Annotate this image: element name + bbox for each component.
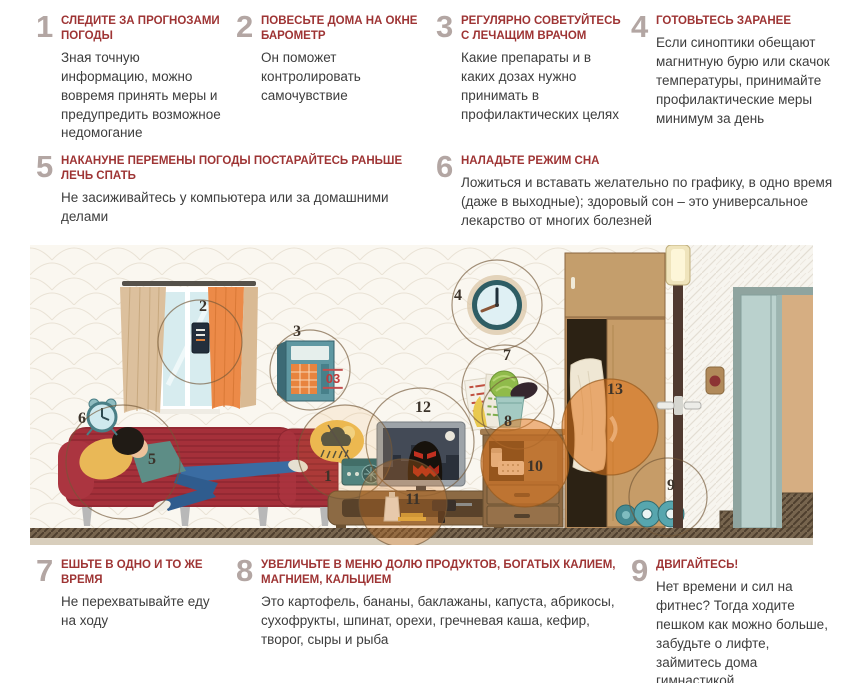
emergency-number-label: 03 (323, 369, 343, 389)
tip-1-number: 1 (36, 12, 61, 143)
tip-4-number: 4 (631, 12, 656, 128)
marker-12-tv: 12 (415, 399, 431, 417)
tip-6: 6 НАЛАДЬТЕ РЕЖИМ СНА Ложиться и вставать… (436, 152, 838, 231)
room-illustration-art (30, 245, 813, 545)
tip-8-title: УВЕЛИЧЬТЕ В МЕНЮ ДОЛЮ ПРОДУКТОВ, БОГАТЫХ… (261, 558, 626, 588)
tip-1-body: Зная точную информацию, можно вовремя пр… (61, 49, 224, 143)
room-illustration: 1 2 3 4 5 6 7 8 9 10 11 12 13 03 (30, 245, 813, 545)
tip-6-number: 6 (436, 152, 461, 231)
marker-11-bottle: 11 (405, 491, 420, 509)
tip-7-title: ЕШЬТЕ В ОДНО И ТО ЖЕ ВРЕМЯ (61, 558, 228, 588)
tip-7-number: 7 (36, 556, 61, 631)
tip-4-title: ГОТОВЬТЕСЬ ЗАРАНЕЕ (656, 14, 835, 29)
tip-9-body: Нет времени и сил на фитнес? Тогда ходит… (656, 578, 837, 683)
tip-2: 2 ПОВЕСЬТЕ ДОМА НА ОКНЕ БАРОМЕТР Он помо… (236, 12, 424, 106)
tip-9: 9 ДВИГАЙТЕСЬ! Нет времени и сил на фитне… (631, 556, 837, 683)
tip-7-body: Не перехватывайте еду на ходу (61, 593, 228, 631)
tip-6-body: Ложиться и вставать желательно по график… (461, 174, 838, 231)
tip-2-title: ПОВЕСЬТЕ ДОМА НА ОКНЕ БАРОМЕТР (261, 14, 424, 44)
infographic-page: 1 СЛЕДИТЕ ЗА ПРОГНОЗАМИ ПОГОДЫ Зная точн… (0, 0, 850, 683)
marker-2-barometer: 2 (199, 298, 207, 316)
tip-6-title: НАЛАДЬТЕ РЕЖИМ СНА (461, 154, 838, 169)
marker-9-dumbbells: 9 (667, 477, 675, 495)
tip-1-title: СЛЕДИТЕ ЗА ПРОГНОЗАМИ ПОГОДЫ (61, 14, 224, 44)
tip-5-number: 5 (36, 152, 61, 227)
tip-5-body: Не засиживайтесь у компьютера или за дом… (61, 189, 434, 227)
marker-6-alarm: 6 (78, 410, 86, 428)
tip-3: 3 РЕГУЛЯРНО СОВЕТУЙТЕСЬ С ЛЕЧАЩИМ ВРАЧОМ… (436, 12, 624, 124)
marker-13-wardrobe: 13 (607, 381, 623, 399)
tip-2-body: Он поможет контролировать самочувствие (261, 49, 424, 106)
marker-5-person: 5 (148, 451, 156, 469)
tip-8: 8 УВЕЛИЧЬТЕ В МЕНЮ ДОЛЮ ПРОДУКТОВ, БОГАТ… (236, 556, 626, 650)
tip-3-number: 3 (436, 12, 461, 124)
tip-3-body: Какие препараты и в каких дозах нужно пр… (461, 49, 624, 125)
tip-7: 7 ЕШЬТЕ В ОДНО И ТО ЖЕ ВРЕМЯ Не перехват… (36, 556, 228, 631)
tip-8-body: Это картофель, бананы, баклажаны, капуст… (261, 593, 626, 650)
tip-5: 5 НАКАНУНЕ ПЕРЕМЕНЫ ПОГОДЫ ПОСТАРАЙТЕСЬ … (36, 152, 434, 227)
marker-4-clock: 4 (454, 287, 462, 305)
marker-8-food: 8 (504, 413, 512, 431)
tip-8-number: 8 (236, 556, 261, 650)
marker-1-radio: 1 (324, 468, 332, 486)
marker-3-phone: 3 (293, 323, 301, 341)
tip-9-number: 9 (631, 556, 656, 683)
tip-5-title: НАКАНУНЕ ПЕРЕМЕНЫ ПОГОДЫ ПОСТАРАЙТЕСЬ РА… (61, 154, 434, 184)
tip-4-body: Если синоптики обещают магнитную бурю ил… (656, 34, 835, 128)
tip-3-title: РЕГУЛЯРНО СОВЕТУЙТЕСЬ С ЛЕЧАЩИМ ВРАЧОМ (461, 14, 624, 44)
marker-7-papers: 7 (503, 347, 511, 365)
tip-4: 4 ГОТОВЬТЕСЬ ЗАРАНЕЕ Если синоптики обещ… (631, 12, 835, 128)
tip-9-title: ДВИГАЙТЕСЬ! (656, 558, 837, 573)
tip-1: 1 СЛЕДИТЕ ЗА ПРОГНОЗАМИ ПОГОДЫ Зная точн… (36, 12, 224, 143)
tip-2-number: 2 (236, 12, 261, 106)
marker-10-pills: 10 (527, 458, 543, 476)
